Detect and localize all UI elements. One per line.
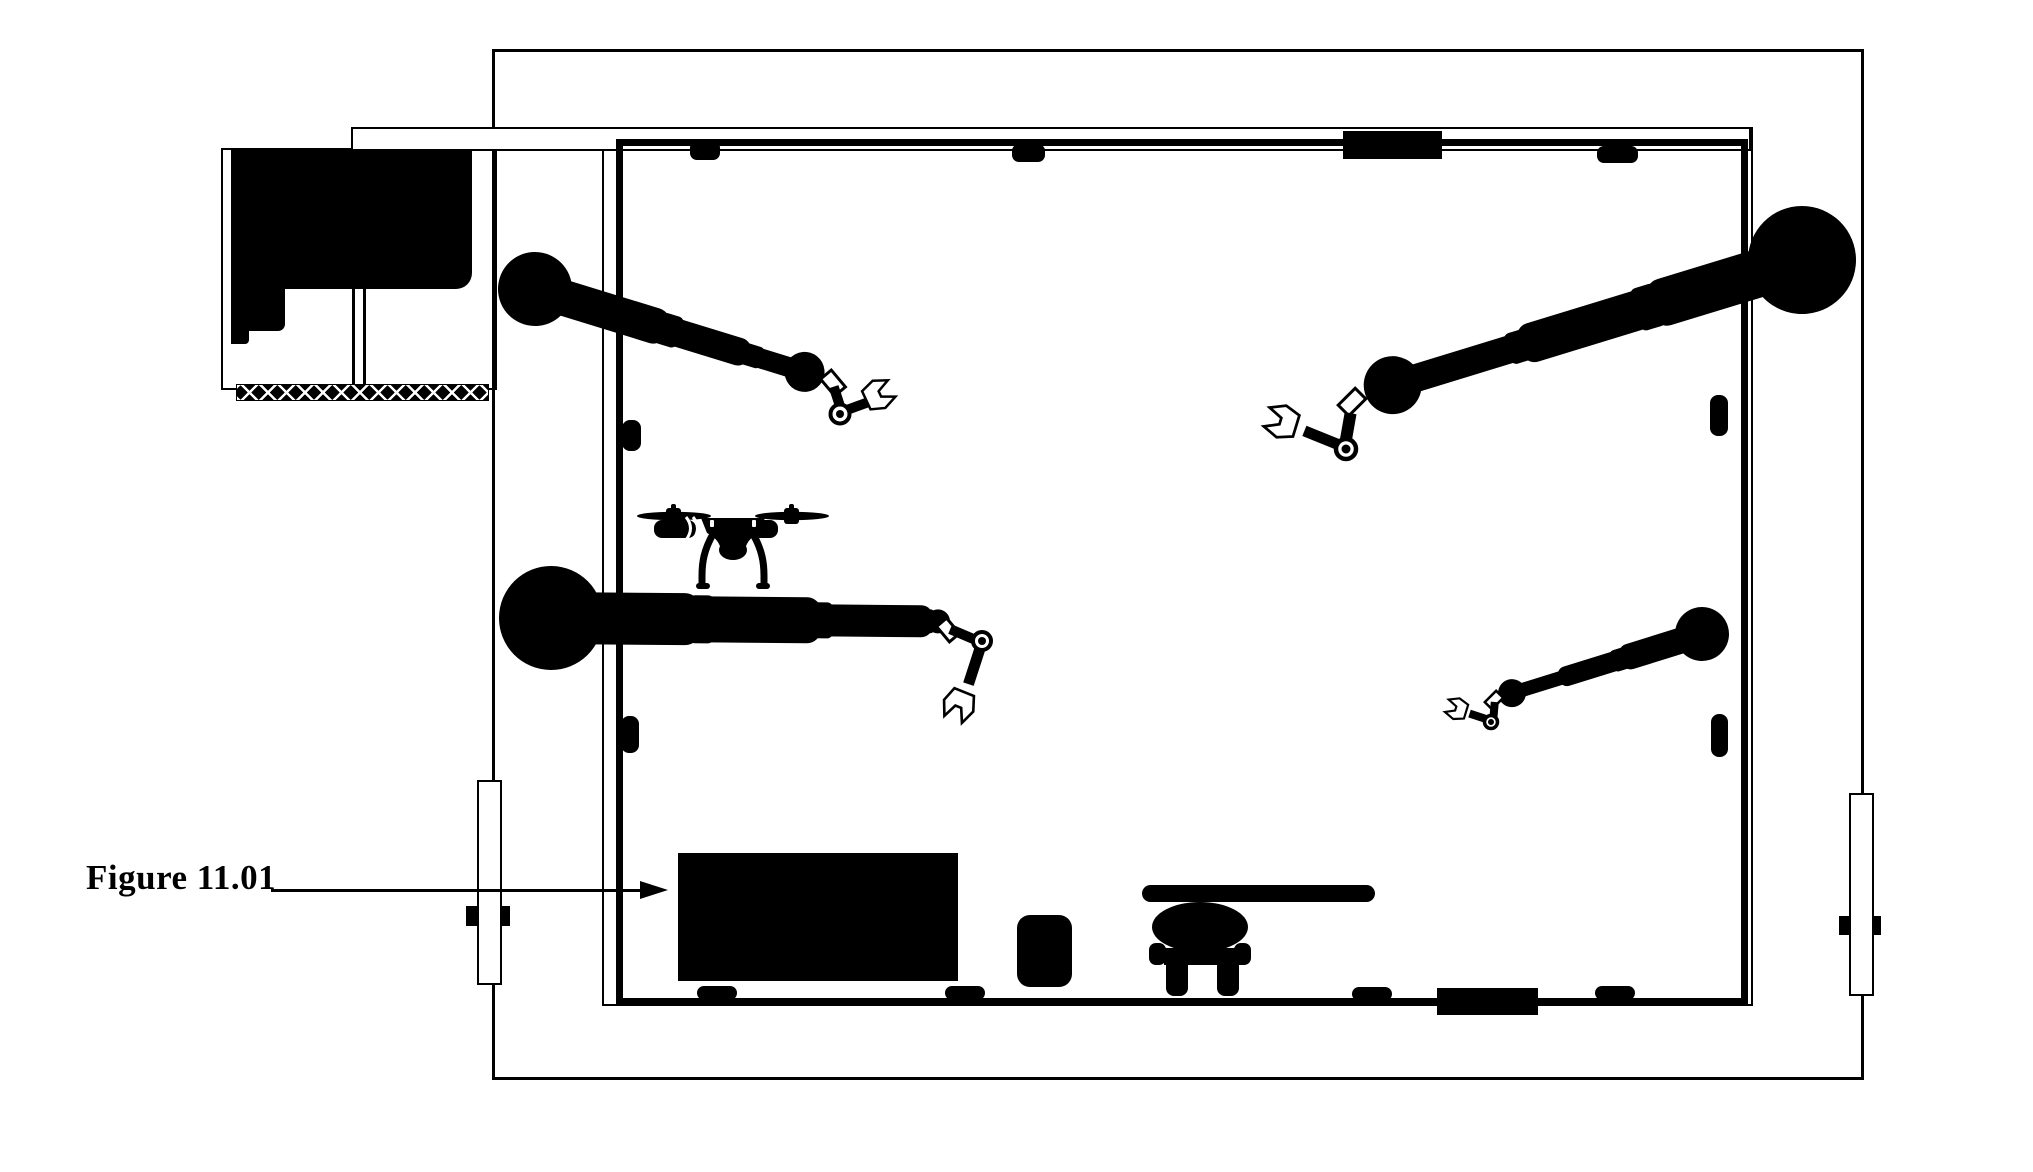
drone-leg-left xyxy=(702,534,713,585)
drone xyxy=(637,504,829,589)
figure-label: Figure 11.01 xyxy=(86,858,276,898)
robot-arm-middle-left xyxy=(499,566,991,726)
robot-arm-middle-right xyxy=(1444,600,1736,728)
leader-line xyxy=(271,889,646,892)
figure-canvas: Figure 11.01 xyxy=(0,0,2033,1172)
robot-arm-top-left xyxy=(489,243,898,424)
desk-top xyxy=(1142,885,1375,902)
chair-seat xyxy=(1152,902,1248,952)
desk-and-chair xyxy=(1142,885,1375,996)
leader-arrowhead xyxy=(640,881,668,899)
machinery-layer xyxy=(0,0,2033,1172)
drone-foot-right xyxy=(756,583,770,589)
drone-dome xyxy=(719,540,747,560)
drone-leg-right xyxy=(753,534,764,585)
chair-armrest-left xyxy=(1149,943,1166,965)
gripper-claw xyxy=(1262,401,1301,442)
gripper-claw xyxy=(939,686,979,725)
drone-foot-left xyxy=(696,583,710,589)
arm-elbow-joint xyxy=(1356,349,1428,421)
chair-base-bar xyxy=(1164,948,1241,965)
gripper-claw xyxy=(1444,695,1470,722)
robot-arm-top-right xyxy=(1262,193,1870,459)
arm-elbow-joint xyxy=(780,347,830,397)
drone-hub-right xyxy=(784,508,799,524)
